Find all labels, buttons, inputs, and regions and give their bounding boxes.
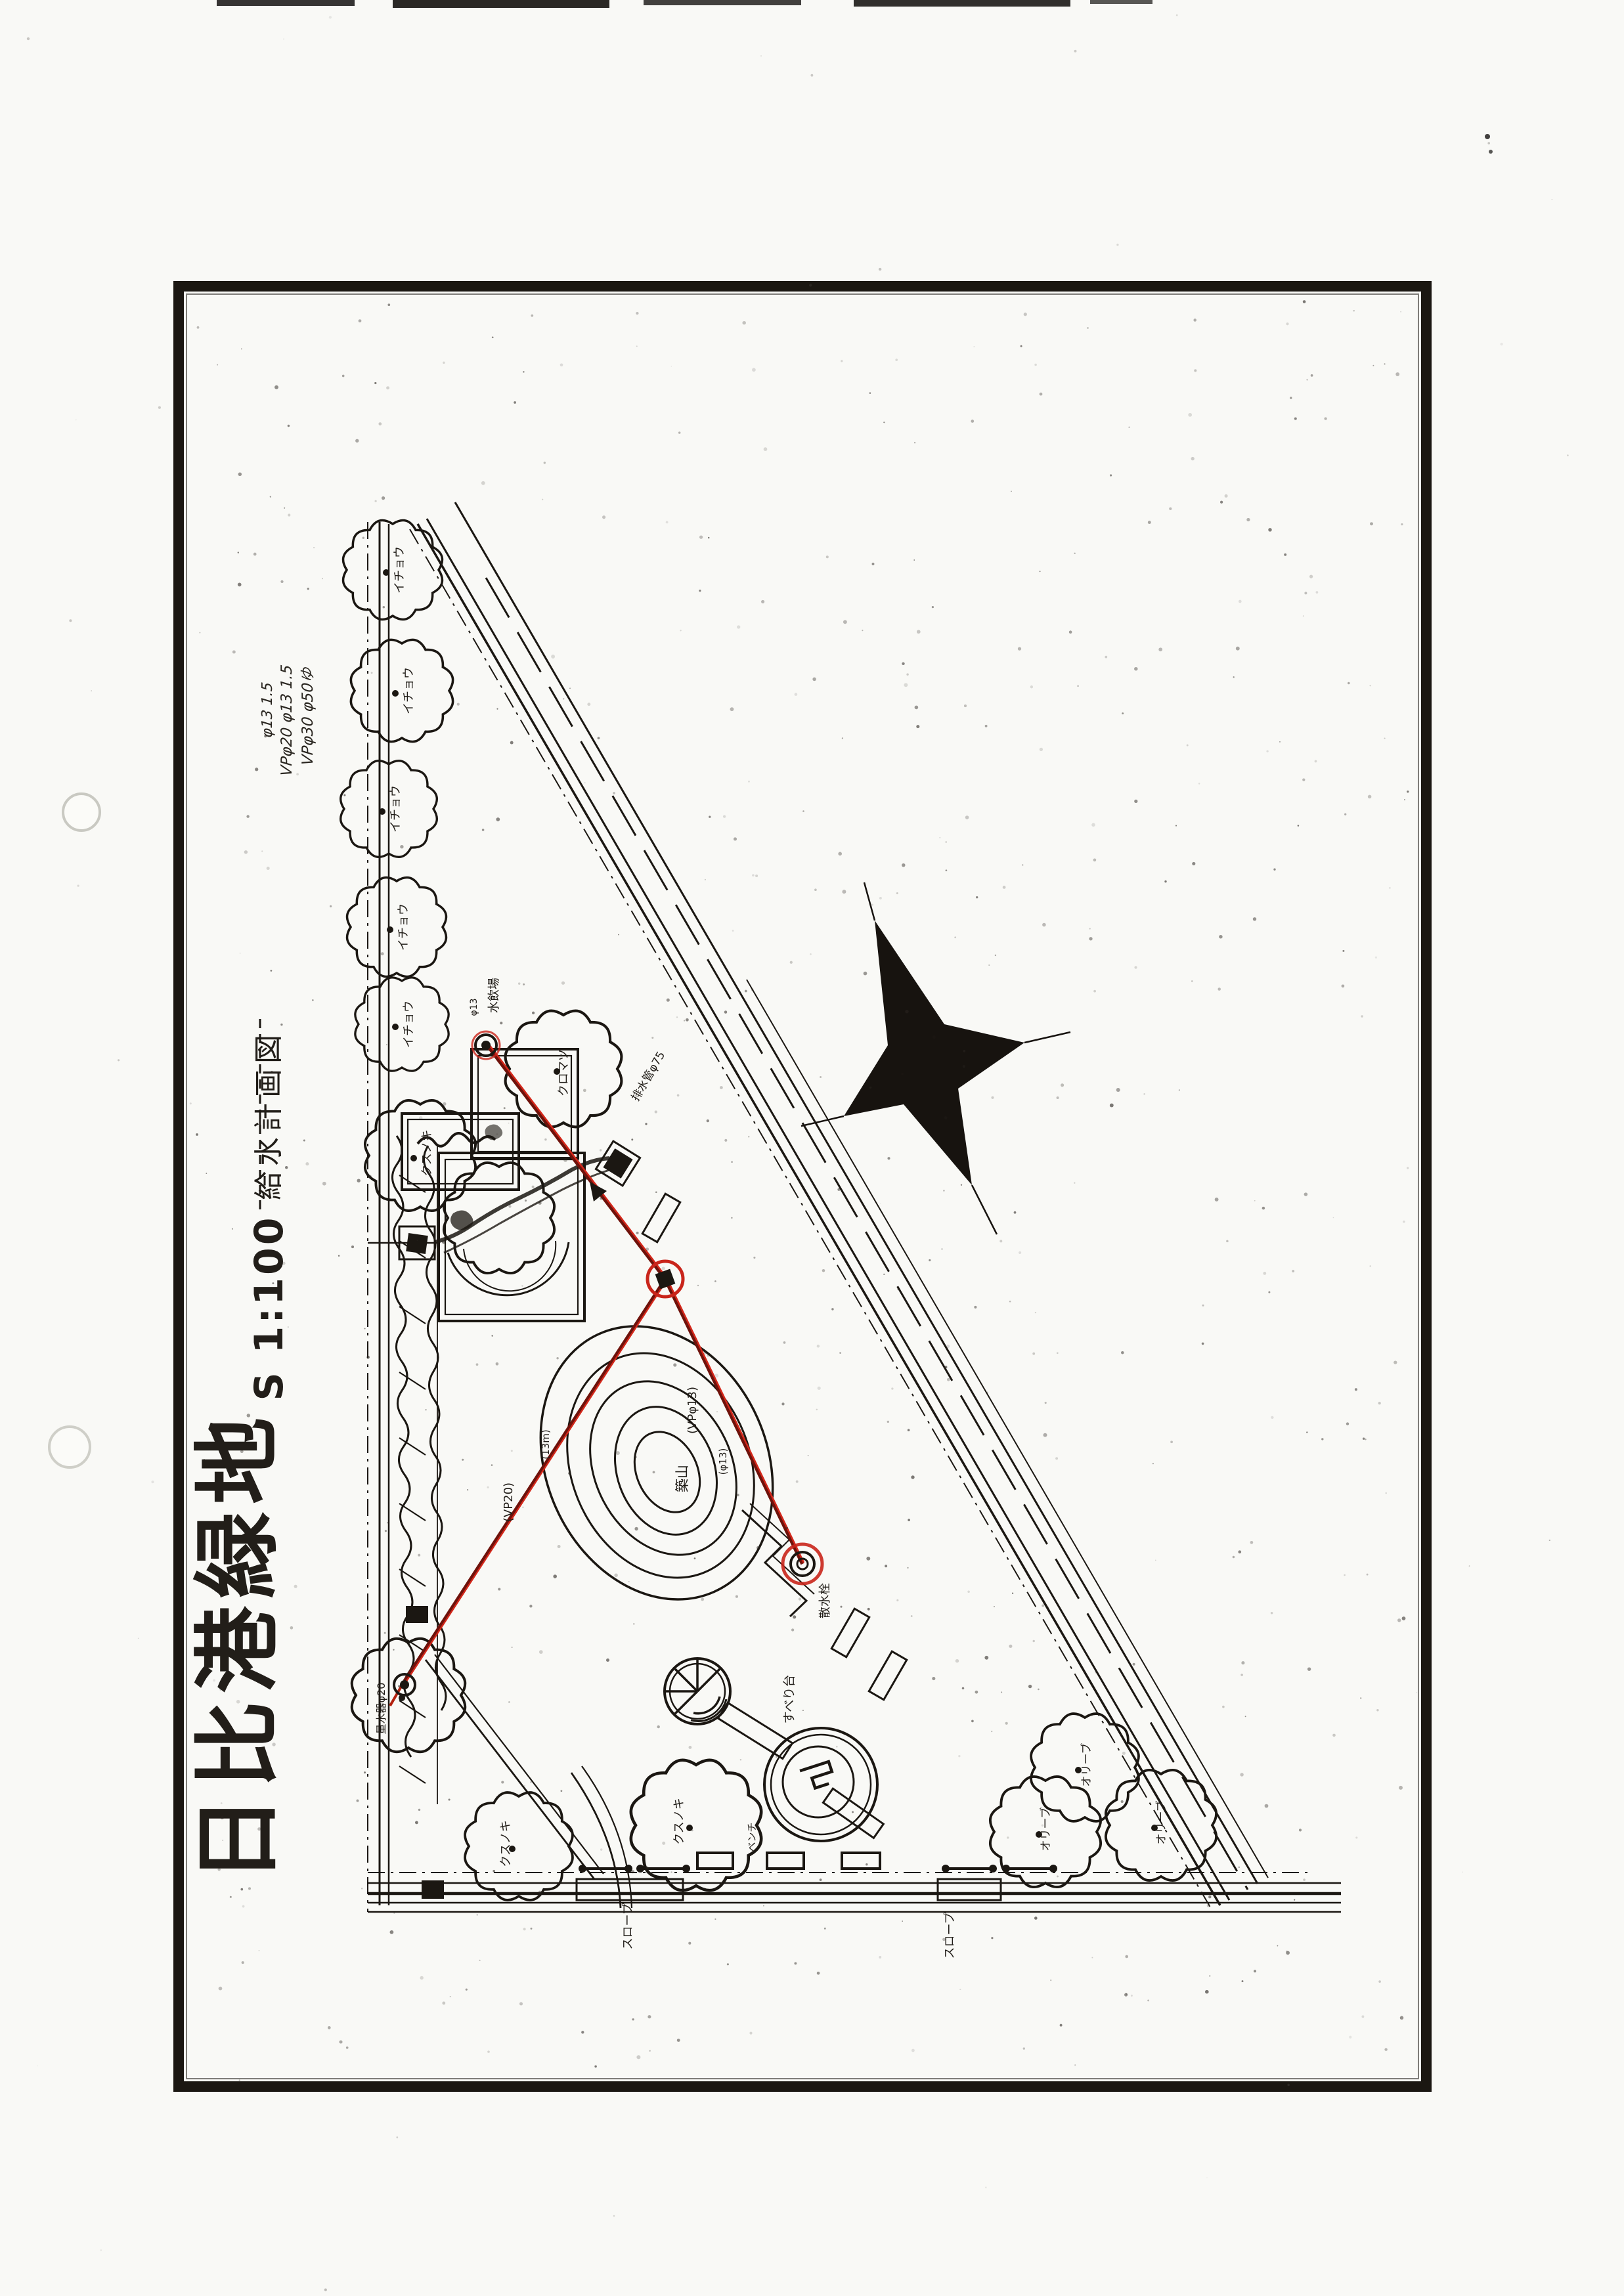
- tree-label: クスノキ: [499, 1820, 513, 1867]
- paper: [0, 0, 1624, 2296]
- drawing-subtitle: 給水計画図: [252, 1029, 286, 1200]
- slide-label: すべり台: [782, 1675, 797, 1724]
- water-meter-label: 量水器φ20: [375, 1683, 387, 1735]
- ramp-label-east: スロープ: [943, 1913, 957, 1959]
- pipe-label: (VP20): [502, 1483, 516, 1522]
- tree-label: オリーブ: [1154, 1801, 1168, 1845]
- tree-label: イチョウ: [393, 546, 406, 594]
- ramp-label-south: スロープ: [621, 1903, 635, 1950]
- pipe-label: (VPφ13): [686, 1387, 699, 1434]
- sprinkler-label: 散水栓: [818, 1583, 832, 1618]
- mound-label: 築山: [674, 1465, 690, 1492]
- tree-label: クロマツ: [557, 1049, 571, 1096]
- tree-label: イチョウ: [397, 903, 410, 951]
- handwritten-note: VPφ20 φ13 1.5: [278, 664, 296, 777]
- drinking-fountain-label: 水飲場: [487, 978, 501, 1013]
- handwritten-note: VPφ30 φ50ゆ: [299, 666, 317, 766]
- tree-label: イチョウ: [402, 1001, 416, 1048]
- drinking-fountain: [472, 1031, 500, 1059]
- tree-label: クスノキ: [420, 1129, 434, 1176]
- drinking-fountain-size: φ13: [469, 998, 479, 1016]
- punch-hole: [63, 794, 100, 831]
- pipe-label: (φ13): [717, 1448, 729, 1475]
- pipe-label: (13m): [540, 1429, 552, 1459]
- punch-hole: [49, 1427, 90, 1467]
- tree-label: イチョウ: [402, 667, 416, 714]
- tree-label: オリーブ: [1080, 1743, 1093, 1787]
- handwritten-note: φ13 1.5: [259, 682, 276, 739]
- tree-label: クスノキ: [672, 1798, 686, 1844]
- tree-label: イチョウ: [389, 785, 403, 833]
- tree-label: オリーブ: [1039, 1808, 1053, 1852]
- scanned-site-plan: 日比港緑地 S 1:100 給水計画図 VPφ30 φ50ゆ VPφ20 φ13…: [0, 0, 1624, 2296]
- drawing-title: 日比港緑地: [188, 1410, 289, 1882]
- drawing-scale: S 1:100: [246, 1215, 292, 1400]
